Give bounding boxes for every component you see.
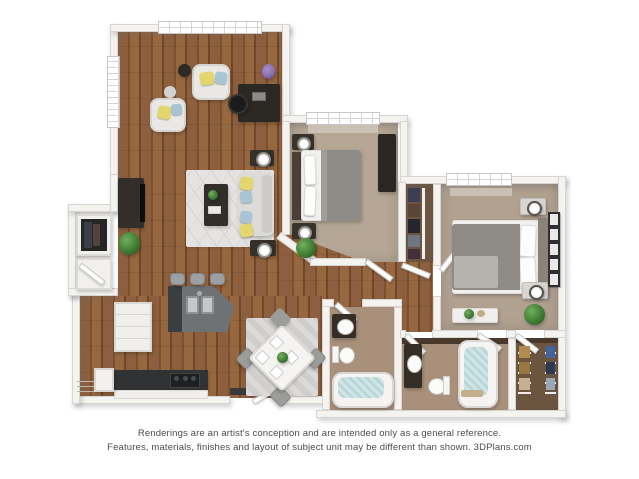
bedroom1-blanket-fold xyxy=(321,150,327,221)
den-laptop xyxy=(252,92,266,101)
closet1-shelf-edge xyxy=(422,188,425,259)
wall-bedroom1-west xyxy=(282,121,290,235)
wall-bath2-top-b xyxy=(432,330,478,338)
tv-screen xyxy=(140,184,145,222)
hanging-coats-2 xyxy=(93,224,100,246)
bath2-tub-water xyxy=(464,347,488,396)
closet1-clothes-4 xyxy=(408,235,420,247)
closet1-clothes-2 xyxy=(408,204,420,217)
wall-art-2 xyxy=(548,227,560,242)
den-left-window xyxy=(107,56,120,128)
closet1-clothes-3 xyxy=(408,219,420,233)
wall-bath2-top-d xyxy=(544,330,566,338)
bedroom2-throw xyxy=(454,256,498,288)
floor-plan-rendering: Renderings are an artist's conception an… xyxy=(0,0,639,479)
den-armchair1-blue-pillow xyxy=(170,103,182,115)
wall-bedroom1-right xyxy=(400,121,408,182)
den-office-chair xyxy=(228,94,248,114)
wall-art-1 xyxy=(548,212,560,227)
bedroom1-media-chest xyxy=(378,134,396,192)
stove-burner-1 xyxy=(174,376,179,381)
island-sink-right xyxy=(201,296,214,314)
wire-rack xyxy=(77,380,94,396)
closet2-clothes-tan xyxy=(519,378,530,390)
bench-plant xyxy=(464,309,474,319)
disclaimer-line-1: Renderings are an artist's conception an… xyxy=(0,427,639,441)
wall-closet2-left xyxy=(508,338,516,410)
bar-stool-3 xyxy=(210,273,225,285)
kitchen-lower-cabinet-fronts xyxy=(114,390,208,399)
den-top-window xyxy=(158,21,262,34)
closet2-clothes-blue-1 xyxy=(546,346,555,358)
bedroom2-window-light xyxy=(450,188,512,196)
bedroom1-plant xyxy=(296,238,316,258)
hanging-coats xyxy=(84,222,92,248)
stove-burner-2 xyxy=(183,376,188,381)
bath1-toilet-tank xyxy=(332,346,339,363)
sofa-blue-pillow-1 xyxy=(239,190,252,203)
bath2-towel xyxy=(461,390,483,397)
wall-den-right xyxy=(282,24,290,123)
wall-art-4 xyxy=(548,257,560,272)
closet1-clothes-1 xyxy=(408,188,420,202)
bedroom1-blanket xyxy=(321,150,361,221)
bedroom2-lamp-north xyxy=(527,201,542,216)
disclaimer-line-2: Features, materials, finishes and layout… xyxy=(0,441,639,455)
den-side-table xyxy=(178,64,191,77)
wall-art-5 xyxy=(548,272,560,287)
wall-nook-left xyxy=(68,204,76,296)
bath1-tub-water xyxy=(338,377,384,398)
sofa-back-cushions xyxy=(262,175,272,233)
closet2-clothes-gold-1 xyxy=(519,346,530,358)
bedroom1-pillow-2 xyxy=(303,186,316,216)
wall-living-left xyxy=(110,174,118,212)
closet2-clothes-navy xyxy=(546,362,555,374)
den-armchair2-blue-pillow xyxy=(214,71,227,84)
wall-bottom-right xyxy=(316,410,566,418)
sofa-lamp-south xyxy=(257,243,272,258)
bath1-sink xyxy=(337,319,354,335)
sofa-blue-pillow-2 xyxy=(239,210,252,223)
bedroom2-lamp-south xyxy=(529,285,544,300)
wall-bath1-top-a xyxy=(322,299,334,307)
stove-burner-3 xyxy=(191,376,196,381)
island-sink-left xyxy=(186,296,199,314)
bar-stool-2 xyxy=(190,273,205,285)
closet1-clothes-5 xyxy=(408,249,420,259)
bedroom2-plant xyxy=(524,304,545,325)
closet2-clothes-gray xyxy=(546,378,555,390)
island-faucet xyxy=(197,291,202,296)
sofa-yellow-pillow-1 xyxy=(239,176,254,191)
den-desk-flowers xyxy=(262,64,275,79)
sofa-lamp-north xyxy=(256,152,271,167)
bedroom2-pillow-1 xyxy=(519,225,537,258)
bedroom2-bench xyxy=(452,308,498,323)
bedroom1-window-light xyxy=(308,125,378,133)
dishwasher xyxy=(94,368,114,392)
wall-closet1-left xyxy=(398,182,406,262)
kitchen-west-cabinets xyxy=(114,302,152,352)
coffee-table-plant xyxy=(208,190,218,200)
island-dark-base xyxy=(168,286,182,332)
disclaimer-text: Renderings are an artist's conception an… xyxy=(0,427,639,455)
dining-centerpiece xyxy=(277,352,288,363)
bath2-sink xyxy=(407,355,422,373)
sofa-yellow-pillow-2 xyxy=(239,223,254,238)
wall-art-3 xyxy=(548,242,560,257)
closet2-clothes-gold-2 xyxy=(519,362,530,374)
wall-bath1-right xyxy=(394,307,402,410)
bedroom1-window xyxy=(306,112,380,125)
bath2-toilet-tank xyxy=(443,376,450,395)
bedroom1-lamp-north xyxy=(297,137,311,151)
bar-stool-1 xyxy=(170,273,185,285)
den-armchair2-yellow-pillow xyxy=(199,71,215,86)
bench-decor xyxy=(477,310,485,317)
den-round-rug xyxy=(164,86,176,98)
wall-bedroom1-south xyxy=(310,258,366,266)
bath1-toilet-bowl xyxy=(339,347,355,364)
bedroom1-pillow-1 xyxy=(303,155,316,185)
wall-bedroom2-west-upper xyxy=(433,184,441,266)
wall-bath1-top-b xyxy=(362,299,402,307)
living-plant xyxy=(119,232,140,255)
coffee-table-books xyxy=(208,206,221,214)
bedroom2-window xyxy=(446,173,512,186)
